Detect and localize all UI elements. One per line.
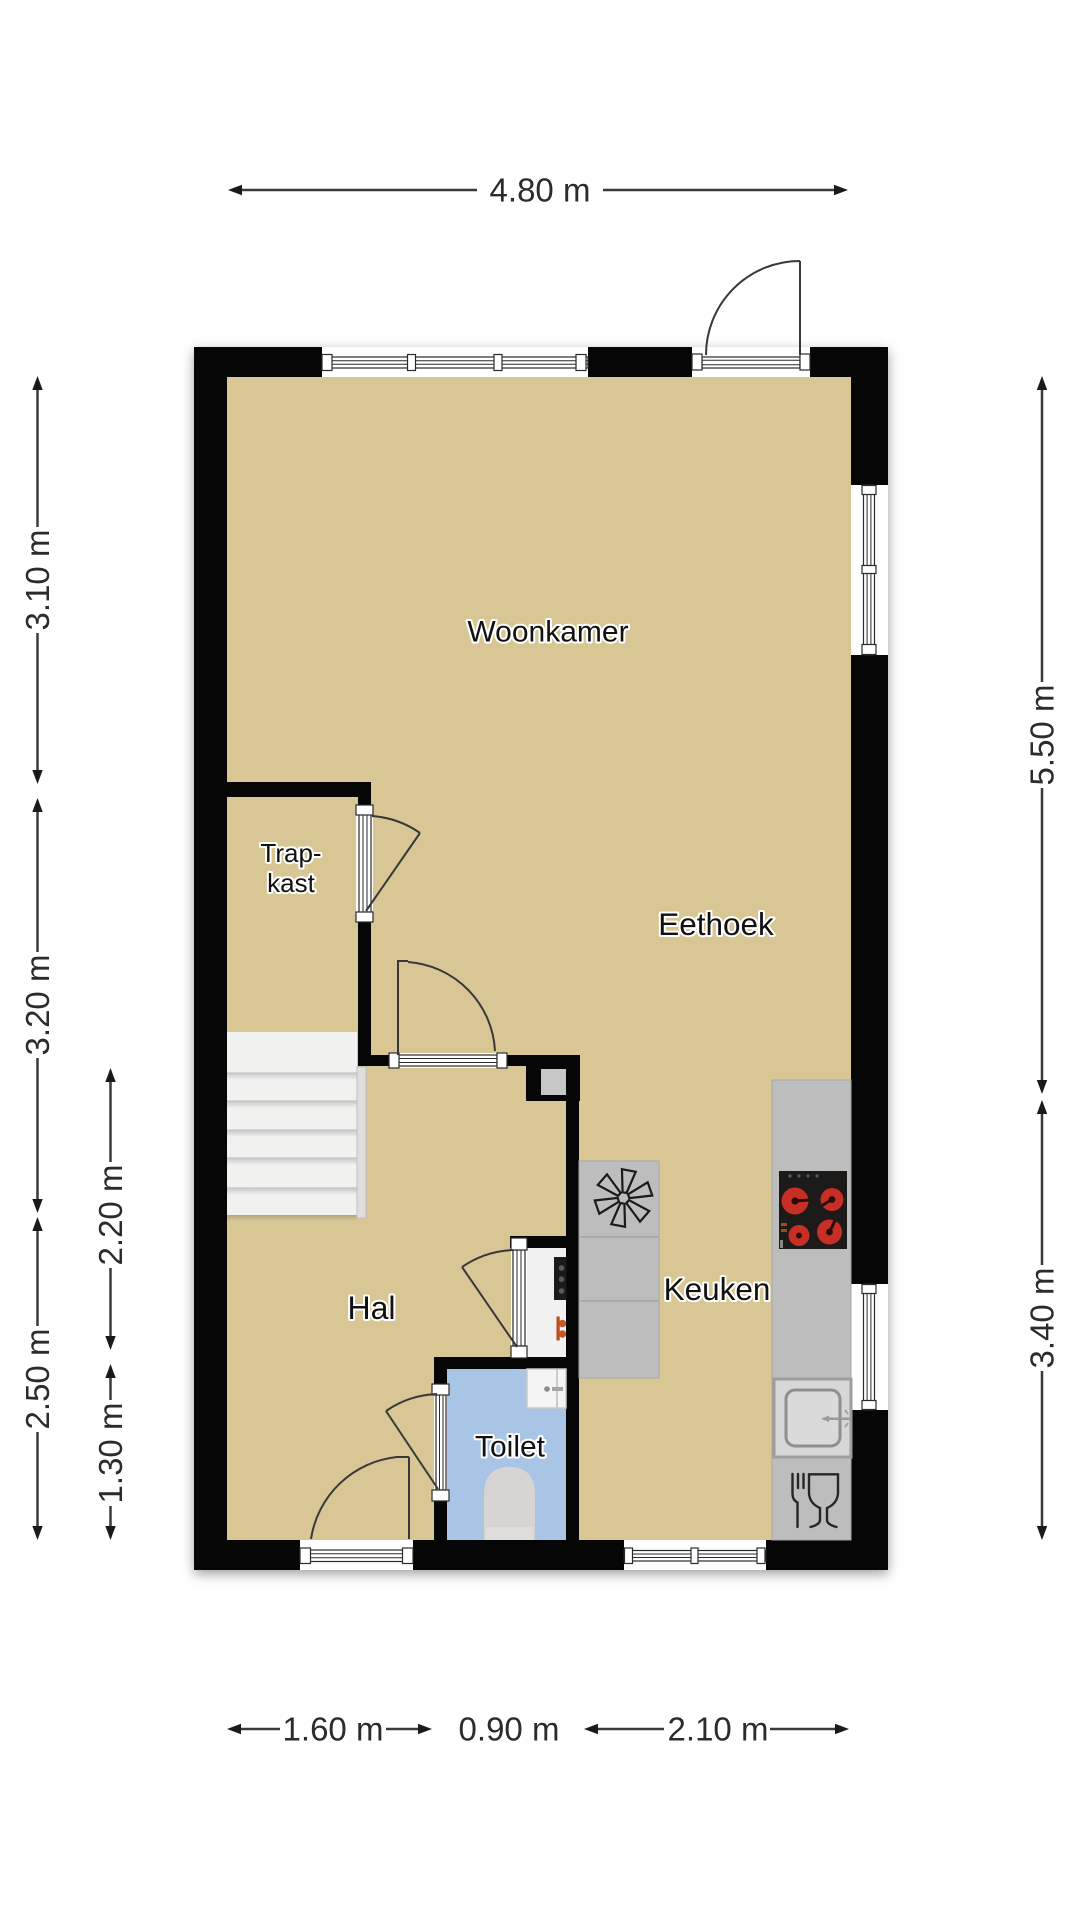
svg-text:Toilet: Toilet — [475, 1431, 546, 1464]
svg-text:3.10 m: 3.10 m — [19, 530, 56, 631]
svg-text:Keuken: Keuken — [664, 1271, 771, 1307]
svg-text:1.60 m: 1.60 m — [283, 1711, 384, 1748]
svg-text:2.50 m: 2.50 m — [19, 1329, 56, 1430]
svg-text:Trap-: Trap- — [260, 838, 321, 868]
svg-text:1.30 m: 1.30 m — [92, 1403, 129, 1504]
svg-text:kast: kast — [267, 868, 315, 898]
svg-text:3.40 m: 3.40 m — [1024, 1268, 1061, 1369]
svg-text:4.80 m: 4.80 m — [490, 172, 591, 209]
svg-text:2.10 m: 2.10 m — [668, 1711, 769, 1748]
svg-text:Woonkamer: Woonkamer — [467, 616, 628, 649]
svg-text:3.20 m: 3.20 m — [19, 955, 56, 1056]
svg-text:Hal: Hal — [347, 1290, 395, 1326]
svg-text:0.90 m: 0.90 m — [459, 1711, 560, 1748]
svg-text:5.50 m: 5.50 m — [1024, 685, 1061, 786]
svg-text:Eethoek: Eethoek — [658, 906, 774, 942]
svg-text:2.20 m: 2.20 m — [92, 1165, 129, 1266]
